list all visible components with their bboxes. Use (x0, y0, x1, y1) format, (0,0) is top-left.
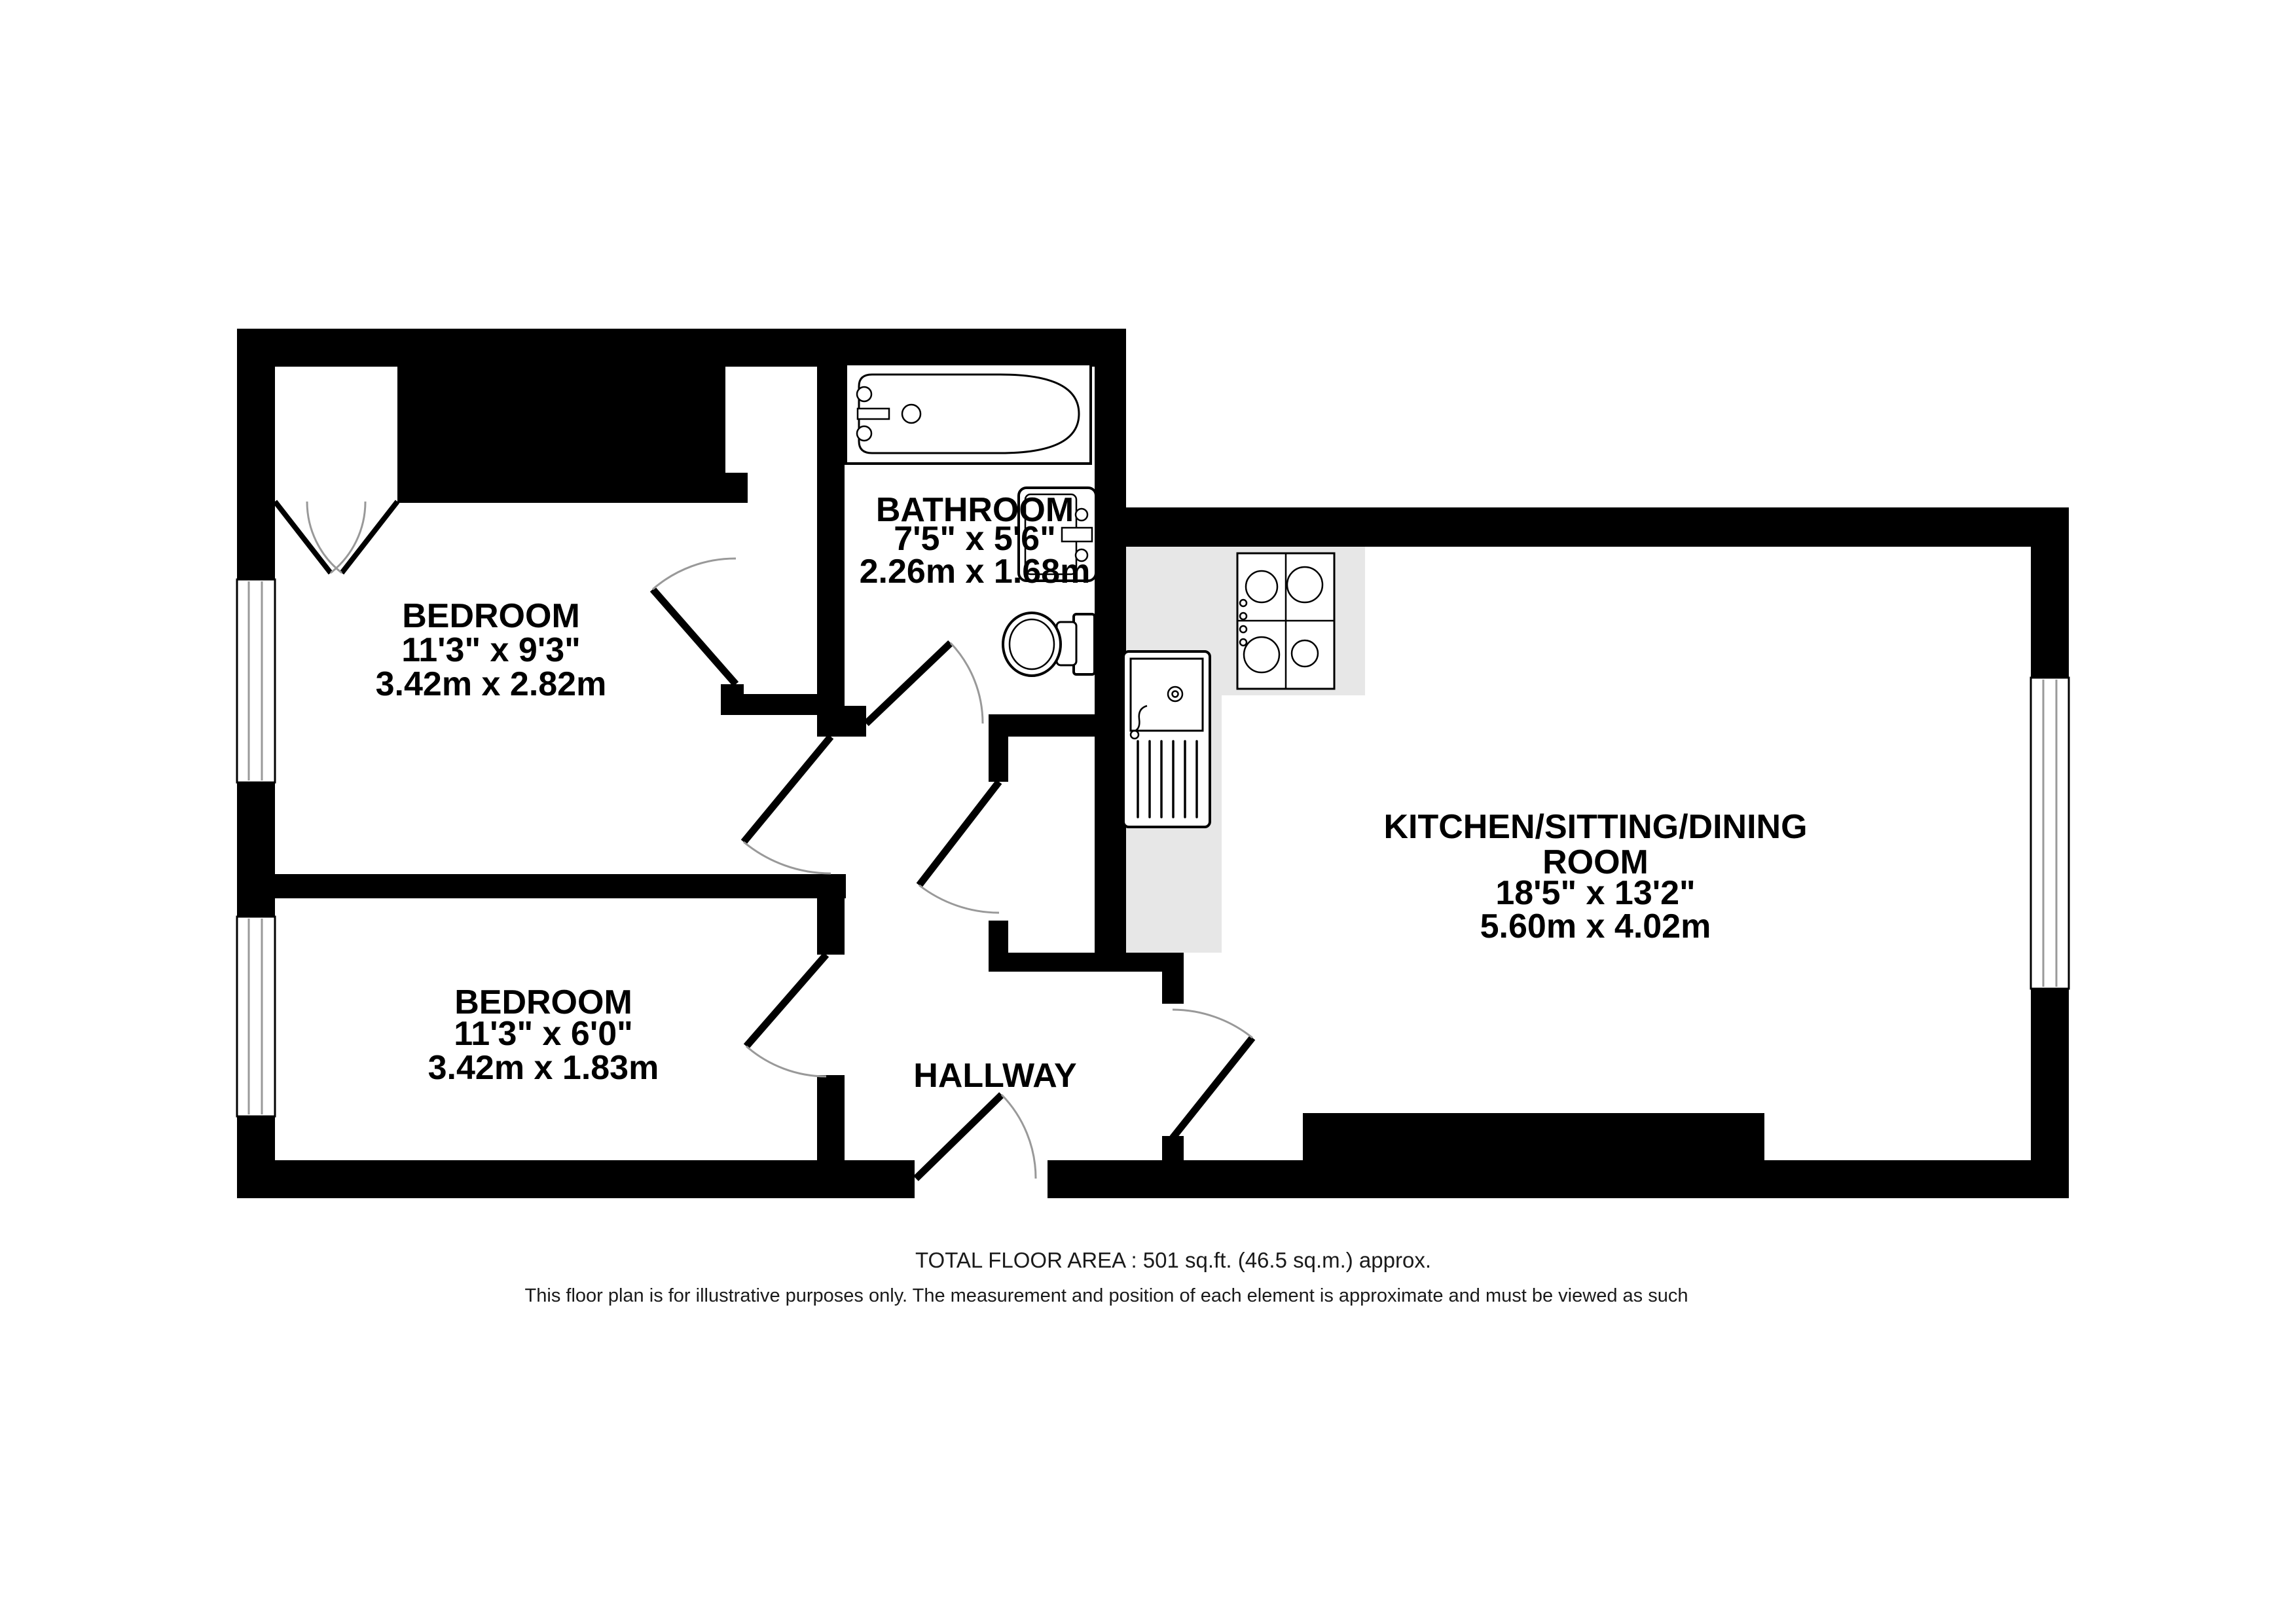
disclaimer: This floor plan is for illustrative purp… (525, 1285, 1688, 1306)
bathroom-door (866, 643, 983, 724)
bedroom-1-imperial: 11'3" x 9'3" (401, 631, 581, 669)
bedroom-2-label: BEDROOM 11'3" x 6'0" 3.42m x 1.83m (428, 983, 659, 1087)
bathroom-metric: 2.26m x 1.68m (860, 553, 1091, 591)
front-door (916, 1095, 1036, 1179)
floorplan-page: BEDROOM 11'3" x 9'3" 3.42m x 2.82m BATHR… (0, 0, 2296, 1612)
bedroom-1-window (237, 579, 275, 782)
bedroom-2-metric: 3.42m x 1.83m (428, 1049, 659, 1087)
kitchen-sink-icon (1123, 651, 1210, 827)
bathtub-icon (846, 364, 1091, 464)
bedroom-1-name: BEDROOM (402, 597, 580, 635)
bedroom-2-window (237, 917, 275, 1116)
bedroom-2-imperial: 11'3" x 6'0" (454, 1015, 633, 1053)
kitchen-name-line1: KITCHEN/SITTING/DINING (1383, 808, 1807, 846)
kitchen-metric: 5.60m x 4.02m (1480, 907, 1711, 945)
total-floor-area: TOTAL FLOOR AREA : 501 sq.ft. (46.5 sq.m… (915, 1248, 1431, 1272)
bathroom-label: BATHROOM 7'5" x 5'6" 2.26m x 1.68m (860, 491, 1091, 591)
wardrobe-door (653, 559, 736, 684)
hallway-label: HALLWAY (913, 1057, 1076, 1095)
kitchen-door (1173, 1010, 1252, 1138)
toilet-icon (1003, 613, 1095, 676)
bedroom-1-label: BEDROOM 11'3" x 9'3" 3.42m x 2.82m (376, 597, 607, 703)
floor-plan: BEDROOM 11'3" x 9'3" 3.42m x 2.82m BATHR… (0, 0, 2296, 1612)
bedroom-1-metric: 3.42m x 2.82m (376, 665, 607, 703)
hob-icon (1237, 553, 1334, 689)
kitchen-imperial: 18'5" x 13'2" (1495, 874, 1695, 912)
bedroom-1-door (744, 737, 831, 873)
hall-cupboard-door (919, 782, 999, 913)
kitchen-label: KITCHEN/SITTING/DINING ROOM 18'5" x 13'2… (1383, 808, 1807, 945)
closet-double-doors (275, 502, 397, 573)
bedroom-2-door (746, 955, 826, 1076)
kitchen-window (2031, 678, 2069, 989)
